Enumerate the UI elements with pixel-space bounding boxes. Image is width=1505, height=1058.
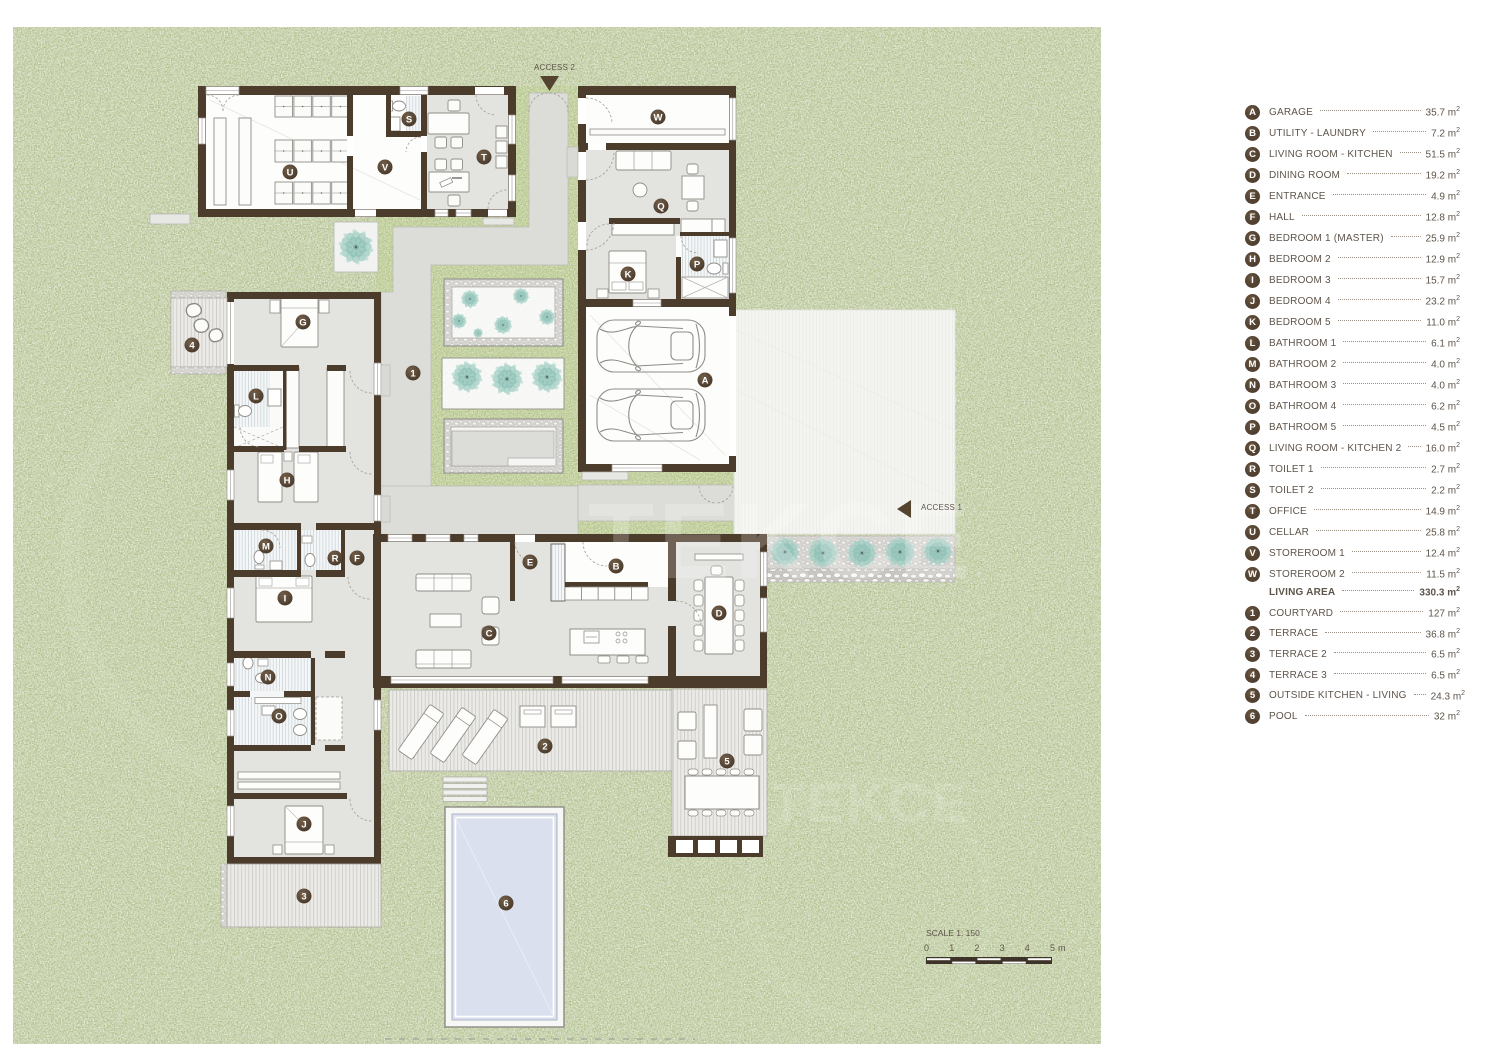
svg-text:U: U	[287, 167, 294, 178]
svg-text:S: S	[406, 114, 412, 125]
svg-text:TEKCE: TEKCE	[588, 480, 974, 601]
svg-text:3: 3	[1000, 943, 1005, 953]
svg-text:0: 0	[924, 943, 929, 953]
svg-text:M: M	[262, 541, 270, 552]
svg-text:O: O	[275, 711, 282, 722]
svg-text:L: L	[253, 391, 259, 402]
svg-text:4: 4	[1025, 943, 1030, 953]
svg-text:5: 5	[1050, 943, 1055, 953]
svg-text:Q: Q	[657, 201, 664, 212]
svg-text:G: G	[299, 317, 306, 328]
svg-text:H: H	[284, 475, 291, 486]
svg-text:1: 1	[410, 368, 416, 379]
svg-text:1: 1	[949, 943, 954, 953]
svg-text:J: J	[301, 819, 306, 830]
svg-text:K: K	[625, 269, 632, 280]
svg-text:B: B	[613, 561, 620, 572]
svg-text:V: V	[382, 162, 389, 173]
svg-text:F: F	[354, 553, 360, 564]
svg-text:SCALE 1: 150: SCALE 1: 150	[926, 928, 980, 938]
svg-text:A: A	[702, 375, 709, 386]
svg-text:3: 3	[301, 891, 306, 902]
svg-text:ACCESS 2: ACCESS 2	[534, 63, 576, 72]
svg-text:TEKCE: TEKCE	[770, 771, 970, 834]
svg-text:5: 5	[724, 756, 730, 767]
svg-text:R: R	[332, 553, 339, 564]
svg-text:C: C	[486, 628, 493, 639]
svg-text:ACCESS 1: ACCESS 1	[921, 503, 963, 512]
svg-text:2: 2	[542, 741, 547, 752]
svg-text:m: m	[1058, 943, 1066, 953]
svg-text:E: E	[527, 557, 533, 568]
svg-text:P: P	[694, 259, 701, 270]
svg-text:N: N	[265, 672, 272, 683]
svg-text:D: D	[716, 608, 723, 619]
svg-text:W: W	[654, 112, 663, 123]
svg-text:2: 2	[974, 943, 979, 953]
svg-text:4: 4	[189, 340, 195, 351]
svg-text:I: I	[284, 593, 287, 604]
svg-text:T: T	[481, 152, 487, 163]
svg-text:6: 6	[503, 898, 508, 909]
